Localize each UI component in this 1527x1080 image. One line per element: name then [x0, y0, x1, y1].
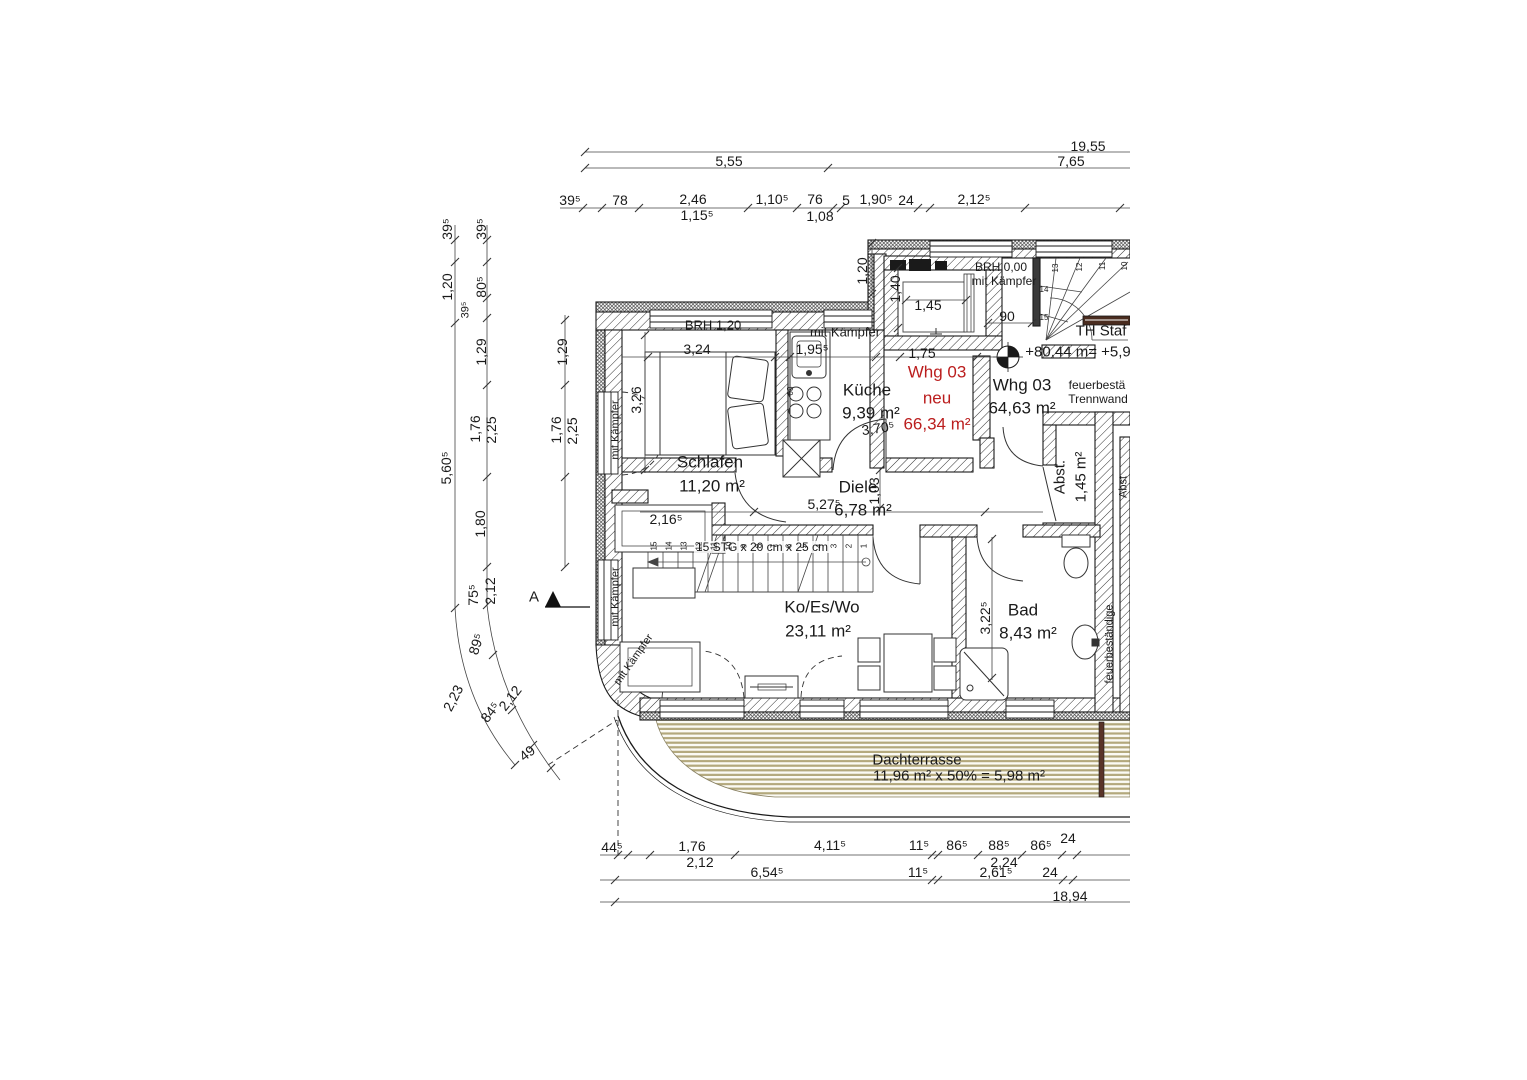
- dim-top-seg: 39⁵: [559, 193, 580, 207]
- dim-left-b: 1,76: [468, 415, 482, 442]
- dim-top-right: 7,65: [1057, 154, 1084, 168]
- dim-diele-t: 1,03: [867, 477, 881, 504]
- stair-number: 13: [1052, 264, 1060, 273]
- room-label-wohnen: Ko/Es/Wo: [784, 599, 859, 616]
- room-label-terrasse: Dachterrasse: [872, 753, 961, 768]
- stair-number: 12: [1076, 263, 1084, 272]
- dim-podest: 90: [999, 309, 1015, 323]
- room-area-schlafen: 11,20 m²: [679, 478, 745, 495]
- dim-top-left: 5,55: [715, 154, 742, 168]
- dim-top-seg: 78: [612, 193, 628, 207]
- chair: [858, 666, 880, 690]
- dim-bottom-r1: 86⁵: [1030, 838, 1051, 852]
- room-label-schlafen: Schlafen: [677, 454, 743, 471]
- dim-diele-l: 5,27⁵: [807, 497, 840, 511]
- coffee-table: [633, 568, 695, 598]
- room-area-terrasse: 11,96 m² x 50% = 5,98 m²: [873, 769, 1045, 784]
- dim-left-b: 1,80: [473, 510, 487, 537]
- dim-bottom-r2: 2,61⁵: [979, 865, 1012, 879]
- dim-bottom-r1: 44⁵: [601, 840, 622, 854]
- stair-number: 15: [648, 539, 664, 554]
- dim-top-seg: 76: [807, 192, 823, 206]
- dim-left-b: 2,12: [483, 577, 497, 604]
- dim-bottom-sub: 2,12: [686, 855, 713, 869]
- dim-bottom-r1: 24: [1060, 831, 1076, 845]
- stair-number: 14: [663, 539, 679, 554]
- chair: [934, 666, 956, 690]
- terrace-group: [614, 716, 1130, 822]
- stair-number: 4: [813, 539, 829, 554]
- room-area-abst: 1,45 m²: [1074, 452, 1089, 503]
- annotation-trennwand-2: Trennwand: [1068, 393, 1128, 405]
- annotation-kaempfer: mit Kämpfer: [972, 275, 1037, 287]
- room-area-bad: 8,43 m²: [999, 625, 1057, 642]
- plan-linework: [0, 0, 1130, 1080]
- floorplan-drawing: 19,55 5,55 7,65 39⁵ 78 2,46 1,10⁵ 76 5 1…: [0, 0, 1130, 1080]
- stair-number: 1: [858, 539, 874, 554]
- dining-table: [884, 634, 932, 692]
- dim-top-seg: 24: [898, 193, 914, 207]
- annotation-brh-flur: BRH 0,00: [975, 261, 1027, 273]
- dim-bottom-r2: 6,54⁵: [750, 865, 783, 879]
- dim-aufzug-t: 1,40: [888, 275, 902, 302]
- dim-left-c: 2,25: [565, 417, 579, 444]
- dim-top-seg: 2,12⁵: [957, 192, 990, 206]
- dim-left-b: 39⁵: [461, 302, 472, 319]
- room-area-wohnen: 23,11 m²: [785, 623, 851, 640]
- dim-top-sub: 1,08: [806, 209, 833, 223]
- stair-number: 10: [1121, 262, 1129, 271]
- dim-bottom-r1: 4,11⁵: [814, 838, 846, 852]
- section-marker-label: A: [529, 590, 539, 605]
- dim-top-seg: 1,90⁵: [859, 192, 892, 206]
- dim-bottom-r1: 1,76: [678, 839, 705, 853]
- wc-tank: [1062, 535, 1090, 547]
- apartment-neu-line2: neu: [923, 390, 951, 407]
- dim-top-seg: 2,46: [679, 192, 706, 206]
- dim-left-c: 1,29: [555, 338, 569, 365]
- section-marker-a: [545, 591, 590, 607]
- chair: [858, 638, 880, 662]
- stair-number: 9: [738, 539, 754, 554]
- dim-left-a: 5,60⁵: [439, 451, 453, 484]
- stair-number: 14: [1040, 286, 1049, 294]
- dim-bottom-r1: 11⁵: [909, 838, 929, 852]
- dim-top-seg: 5: [842, 193, 850, 207]
- stair-number: 3: [828, 539, 844, 554]
- apartment-alt-line1: Whg 03: [993, 377, 1052, 394]
- chair: [934, 638, 956, 662]
- stair-number: 2: [843, 539, 859, 554]
- dim-schrank: 2,16⁵: [649, 512, 682, 526]
- dim-left-b: 39⁵: [474, 218, 488, 239]
- annotation-trennwand-seite: feuerbeständige: [1105, 605, 1116, 684]
- terrace-divider: [1099, 722, 1104, 797]
- dim-aufzug-b: 1,45: [914, 298, 941, 312]
- room-area-diele: 6,78 m²: [834, 502, 892, 519]
- dim-bottom-total: 18,94: [1052, 889, 1087, 903]
- annotation-herd: 08: [787, 387, 795, 396]
- dim-top-total: 19,55: [1070, 139, 1105, 153]
- stair-number: 10: [723, 539, 739, 554]
- stair-number: 7: [768, 539, 784, 554]
- pillow: [727, 403, 768, 450]
- annotation-treppenhaus: TH Staf: [1076, 324, 1127, 339]
- room-label-kueche: Küche: [843, 382, 891, 399]
- dim-left-c: 1,76: [549, 416, 563, 443]
- dim-flur-b: 1,75: [908, 346, 935, 360]
- dim-left-a: 1,20: [440, 273, 454, 300]
- dim-top-seg: 1,10⁵: [755, 192, 788, 206]
- stair-number: 6: [783, 539, 799, 554]
- annotation-kaempfer: mit Kämpfer: [611, 400, 622, 459]
- apartment-alt-line2: 64,63 m²: [988, 400, 1055, 417]
- dim-schlafen-b: 3,24: [683, 342, 710, 356]
- stair-number: 11: [708, 539, 724, 554]
- dim-bottom-r2: 11⁵: [908, 865, 928, 879]
- annotation-kaempfer: mit Kämpfer: [611, 567, 622, 626]
- inner-stair-numbers: 151413121110987654321: [648, 538, 873, 554]
- dim-left-b: 1,29: [474, 338, 488, 365]
- dim-left-b: 2,25: [484, 416, 498, 443]
- pillow: [727, 356, 768, 403]
- dim-bottom-r2: 24: [1042, 865, 1058, 879]
- dim-left-a: 39⁵: [440, 218, 454, 239]
- room-label-bad: Bad: [1008, 602, 1038, 619]
- dim-bottom-r1: 88⁵: [988, 838, 1009, 852]
- stair-number: 11: [1099, 262, 1107, 270]
- stair-number: 13: [678, 539, 694, 554]
- dim-top-sub: 1,15⁵: [680, 208, 713, 222]
- floorplan-sheet: { "colors": { "red": "#bb1e1e", "deck": …: [0, 0, 1527, 1080]
- annotation-kaempfer: mit Kämpfer: [810, 326, 880, 339]
- dim-left-b: 80⁵: [474, 276, 488, 297]
- dim-schlafen-t: 3,26: [629, 386, 643, 413]
- stair-number: 5: [798, 539, 814, 554]
- annotation-hoehe: +80,44 m= +5,9: [1025, 345, 1130, 360]
- annotation-trennwand-1: feuerbestä: [1069, 379, 1126, 391]
- dim-bad-t: 3,22⁵: [978, 601, 992, 634]
- dim-left-b: 75⁵: [466, 584, 480, 605]
- dim-kueche-b: 1,95⁵: [795, 342, 828, 356]
- room-label-abst: Abst.: [1053, 460, 1068, 494]
- stair-number: 8: [753, 539, 769, 554]
- stair-number: 12: [693, 539, 709, 554]
- apartment-neu-line3: 66,34 m²: [903, 416, 970, 433]
- dim-flur-h: 1,20: [855, 257, 869, 284]
- dim-bottom-r1: 86⁵: [946, 838, 967, 852]
- annotation-brh-schlafen: BRH 1,20: [685, 319, 741, 332]
- stair-number: 15: [1040, 314, 1049, 322]
- wc: [1064, 548, 1088, 578]
- apartment-neu-line1: Whg 03: [908, 364, 967, 381]
- annotation-abst-nachbar: Abst: [1119, 476, 1130, 498]
